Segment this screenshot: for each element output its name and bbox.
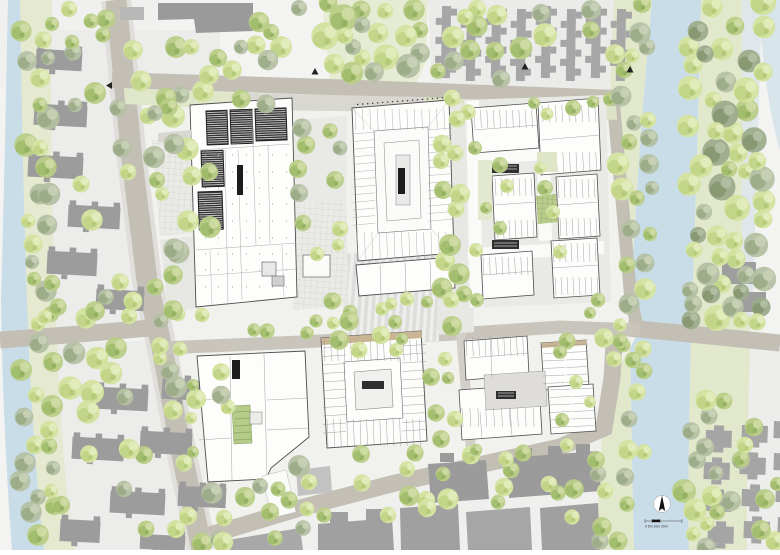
svg-text:0 5m 10m 20m: 0 5m 10m 20m — [645, 525, 668, 529]
